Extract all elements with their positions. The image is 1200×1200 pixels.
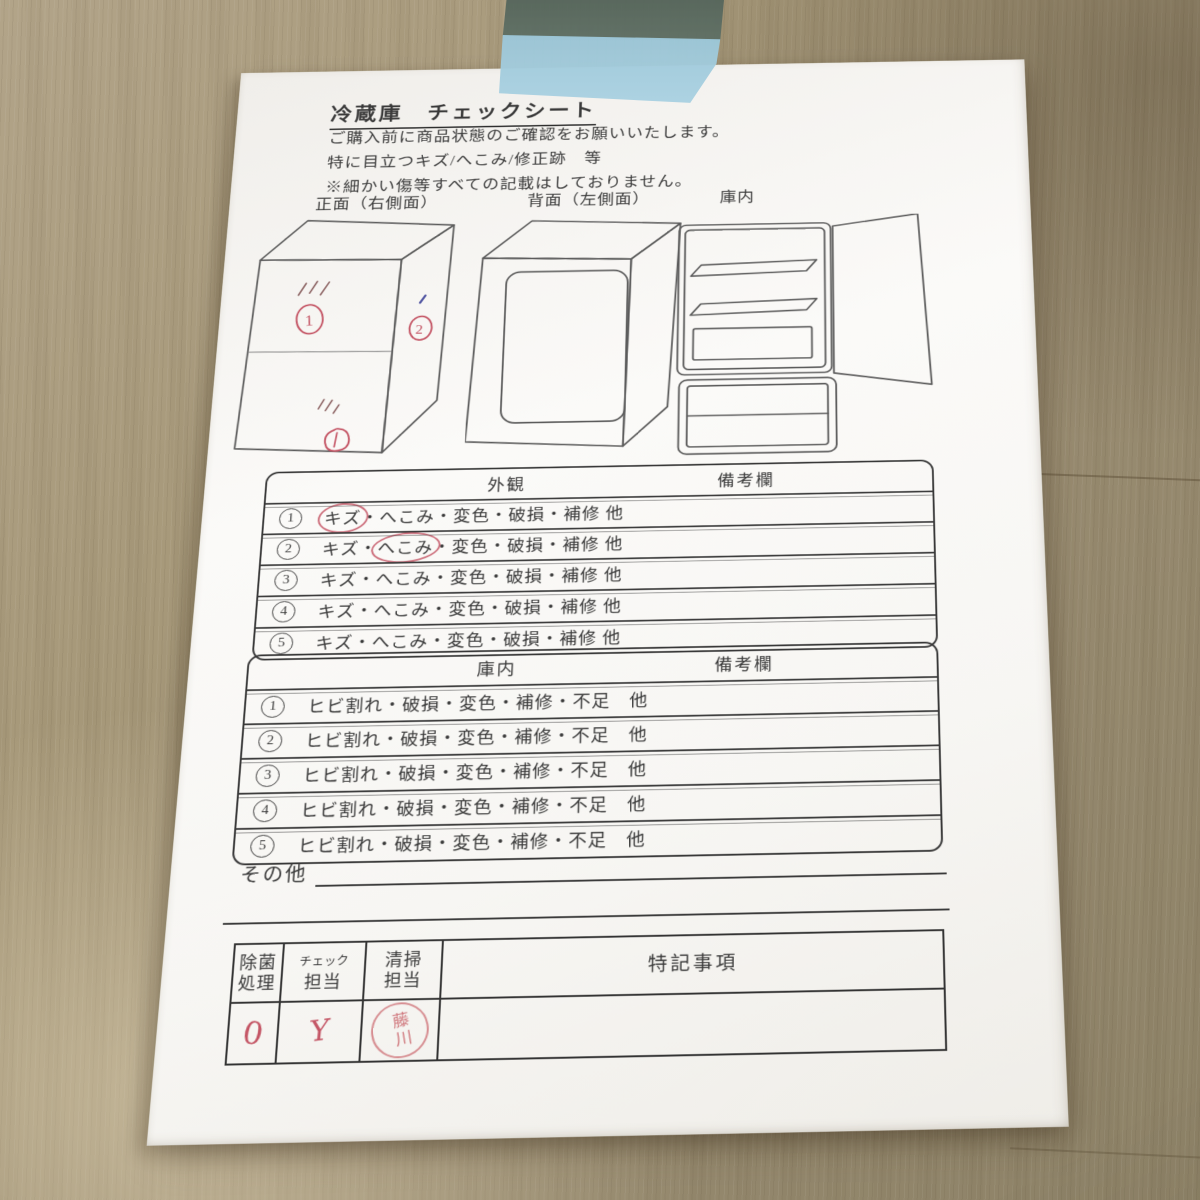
annotation-number-2: 2 — [415, 322, 423, 337]
row-number: 1 — [260, 696, 285, 718]
scratch-marks — [298, 281, 329, 295]
header-text: 担当 — [383, 970, 422, 992]
notes-cell — [438, 990, 945, 1060]
fridge-top-face — [260, 218, 454, 262]
crisper-drawer — [693, 327, 812, 360]
blue-pen-mark — [420, 296, 425, 303]
masking-tape — [494, 0, 744, 106]
header-text: 処理 — [237, 973, 276, 995]
fridge-side-face — [623, 223, 681, 446]
fridge-back-face — [465, 256, 632, 450]
freezer-drawer-line — [687, 413, 828, 416]
row-number: 2 — [276, 539, 301, 560]
diagram-label-front: 正面（右側面） — [315, 192, 439, 214]
diagram-label-back: 背面（左側面） — [527, 188, 650, 210]
scratch-marks — [318, 399, 339, 413]
row-number: 4 — [252, 799, 278, 822]
header-text: 特記事項 — [648, 953, 739, 976]
header-text: 清掃 — [384, 949, 422, 971]
disinfect-mark: 0 — [241, 1021, 265, 1044]
intro-line: 特に目立つキズ/へこみ/修正跡 等 — [326, 147, 602, 172]
exterior-table: 外観 備考欄 1キズ・へこみ・変色・破損・補修 他2キズ・へこみ・変色・破損・補… — [251, 459, 938, 660]
fridge-front-diagram: 1 2 — [232, 214, 456, 462]
shelf — [691, 260, 817, 277]
row-text: ヒビ割れ・破損・変色・補修・不足 他 — [302, 756, 647, 787]
row-text: キズ・へこみ・変色・破損・補修 他 — [323, 501, 624, 529]
ruled-line — [223, 908, 950, 924]
other-section-label: その他 — [239, 859, 308, 888]
row-number: 1 — [278, 508, 303, 529]
door-divider-line — [249, 350, 392, 354]
red-circle-annotation: キズ — [323, 506, 361, 529]
cleaning-cell: 藤川 — [360, 1000, 441, 1061]
diagram-label-interior: 庫内 — [720, 186, 755, 207]
row-text: キズ・へこみ・変色・破損・補修 他 — [321, 532, 623, 560]
wood-surface: 冷蔵庫 チェックシート ご購入前に商品状態のご確認をお願いいたします。 特に目立… — [0, 0, 1200, 1200]
back-panel-outline — [500, 270, 628, 423]
row-number: 3 — [274, 570, 299, 592]
remarks-header: 備考欄 — [717, 468, 775, 491]
row-text: キズ・へこみ・変色・破損・補修 他 — [319, 563, 623, 591]
row-text: ヒビ割れ・破損・変色・補修・不足 他 — [299, 791, 646, 822]
red-circle-annotation: へこみ — [377, 535, 434, 559]
header-text: チェック — [299, 950, 350, 972]
row-number: 3 — [255, 764, 281, 787]
shelf — [690, 298, 817, 315]
wood-plank-seam — [1010, 1147, 1200, 1159]
fridge-back-diagram — [464, 216, 689, 454]
wood-plank-seam — [1032, 473, 1200, 482]
scribble-annotation — [324, 429, 350, 452]
row-text: ヒビ割れ・破損・変色・補修・不足 他 — [304, 722, 648, 753]
row-text: キズ・へこみ・変色・破損・補修 他 — [317, 594, 622, 623]
scribble-annotation-digit — [334, 433, 337, 447]
open-door — [832, 214, 931, 387]
row-number: 5 — [269, 632, 294, 654]
fridge-top-face — [483, 218, 681, 261]
table-title: 外観 — [487, 472, 526, 495]
fridge-front-face — [234, 258, 402, 456]
fridge-interior-diagram — [674, 213, 945, 457]
row-number: 2 — [258, 730, 283, 753]
row-text: ヒビ割れ・破損・変色・補修・不足 他 — [307, 688, 649, 718]
row-text: ヒビ割れ・破損・変色・補修・不足 他 — [297, 826, 646, 857]
interior-table: 庫内 備考欄 1ヒビ割れ・破損・変色・補修・不足 他2ヒビ割れ・破損・変色・補修… — [231, 642, 943, 866]
sign-col-disinfect-header: 除菌 処理 — [231, 944, 285, 1004]
sign-col-check-header: チェック 担当 — [281, 943, 368, 1003]
annotation-number-1: 1 — [304, 311, 313, 329]
row-number: 5 — [249, 835, 275, 858]
check-mark: Y — [309, 1020, 331, 1044]
sign-col-notes-header: 特記事項 — [441, 931, 944, 1000]
ruled-line — [315, 872, 946, 886]
header-text: 除菌 — [239, 952, 278, 974]
check-cell: Y — [277, 1001, 364, 1062]
name-stamp: 藤川 — [367, 997, 433, 1064]
sign-col-cleaning-header: 清掃 担当 — [364, 941, 444, 1001]
remarks-header: 備考欄 — [714, 651, 773, 675]
disinfect-cell: 0 — [227, 1003, 281, 1064]
header-text: 担当 — [303, 971, 342, 993]
sign-table: 除菌 処理 チェック 担当 清掃 担当 特記事項 0 Y 藤川 — [225, 929, 948, 1066]
table-title: 庫内 — [476, 656, 517, 680]
interior-table-rows: 1ヒビ割れ・破損・変色・補修・不足 他2ヒビ割れ・破損・変色・補修・不足 他3ヒ… — [233, 676, 941, 864]
row-number: 4 — [271, 601, 296, 623]
exterior-table-rows: 1キズ・へこみ・変色・破損・補修 他2キズ・へこみ・変色・破損・補修 他3キズ・… — [253, 491, 936, 659]
checksheet-paper: 冷蔵庫 チェックシート ご購入前に商品状態のご確認をお願いいたします。 特に目立… — [147, 59, 1069, 1145]
